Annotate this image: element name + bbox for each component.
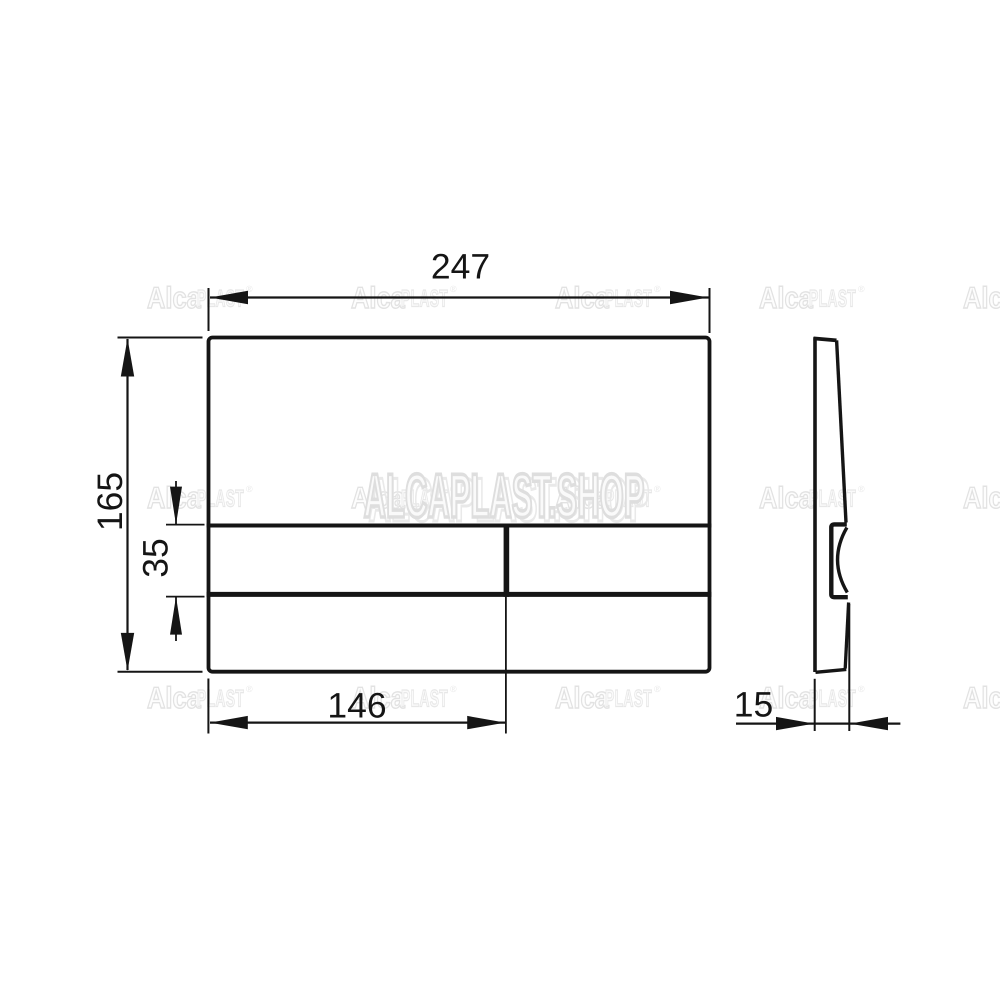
svg-text:146: 146: [327, 686, 386, 726]
svg-text:247: 247: [431, 247, 490, 287]
svg-text:165: 165: [90, 472, 130, 531]
svg-text:35: 35: [136, 538, 176, 578]
svg-text:15: 15: [734, 685, 774, 725]
svg-text:ALCAPLAST.SHOP: ALCAPLAST.SHOP: [364, 462, 645, 531]
